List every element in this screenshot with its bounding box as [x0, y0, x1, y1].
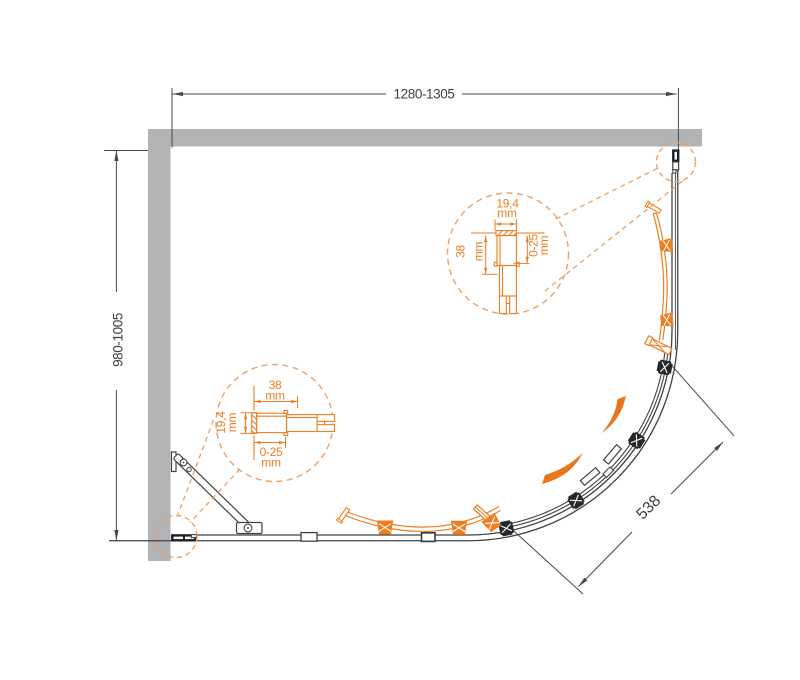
- svg-text:mm: mm: [261, 456, 281, 470]
- svg-text:980-1005: 980-1005: [111, 313, 126, 367]
- svg-text:mm: mm: [225, 413, 239, 433]
- svg-text:mm: mm: [497, 206, 517, 220]
- svg-text:mm: mm: [537, 236, 551, 256]
- svg-text:mm: mm: [265, 389, 285, 403]
- svg-text:1280-1305: 1280-1305: [394, 87, 455, 102]
- svg-text:38: 38: [454, 245, 468, 258]
- svg-text:mm: mm: [472, 242, 486, 262]
